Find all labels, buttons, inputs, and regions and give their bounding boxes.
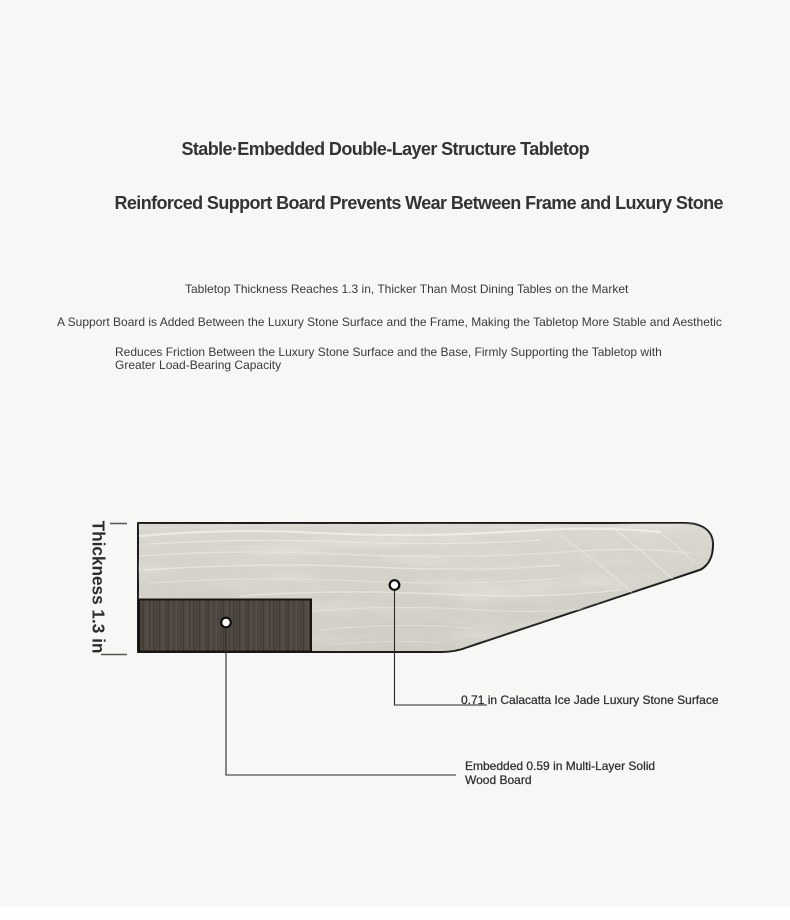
svg-text:Thickness 1.3 in: Thickness 1.3 in <box>89 521 109 654</box>
